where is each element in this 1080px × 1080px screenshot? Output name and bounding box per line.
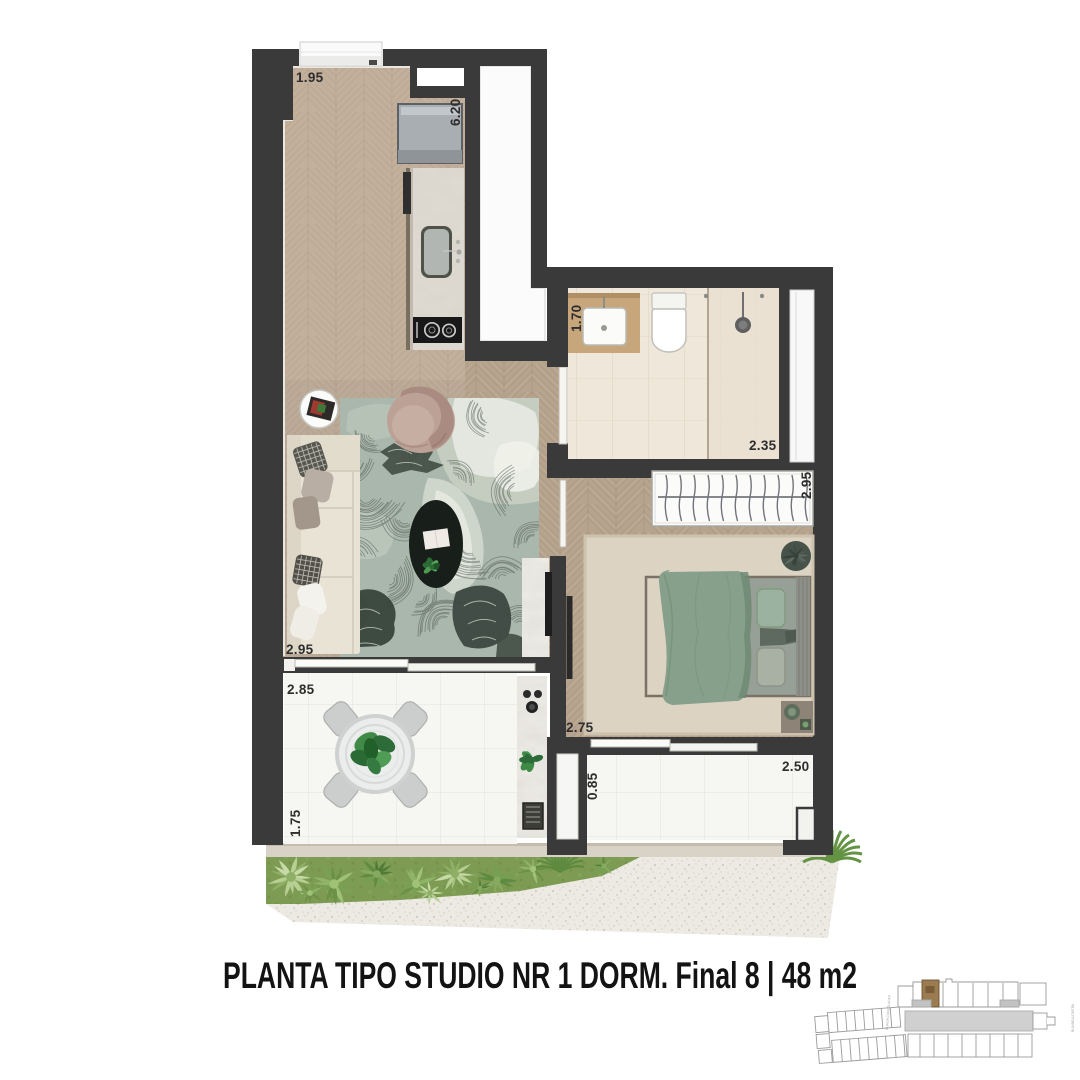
svg-text:1.70: 1.70: [569, 305, 584, 332]
svg-text:2.85: 2.85: [287, 682, 315, 697]
svg-text:2.95: 2.95: [286, 642, 314, 657]
svg-text:2.50: 2.50: [782, 759, 809, 774]
svg-text:1.75: 1.75: [288, 809, 303, 837]
svg-text:1.95: 1.95: [296, 70, 324, 85]
svg-text:6.20: 6.20: [448, 99, 463, 126]
svg-text:PLANTA TIPO STUDIO NR 1 DORM.: PLANTA TIPO STUDIO NR 1 DORM. Final 8 | …: [223, 955, 857, 997]
svg-text:RUA BELA CINTRA: RUA BELA CINTRA: [1071, 1003, 1075, 1032]
svg-text:2.35: 2.35: [749, 438, 777, 453]
svg-text:0.85: 0.85: [585, 772, 600, 800]
svg-text:2.95: 2.95: [799, 471, 814, 499]
svg-text:2.75: 2.75: [566, 720, 594, 735]
